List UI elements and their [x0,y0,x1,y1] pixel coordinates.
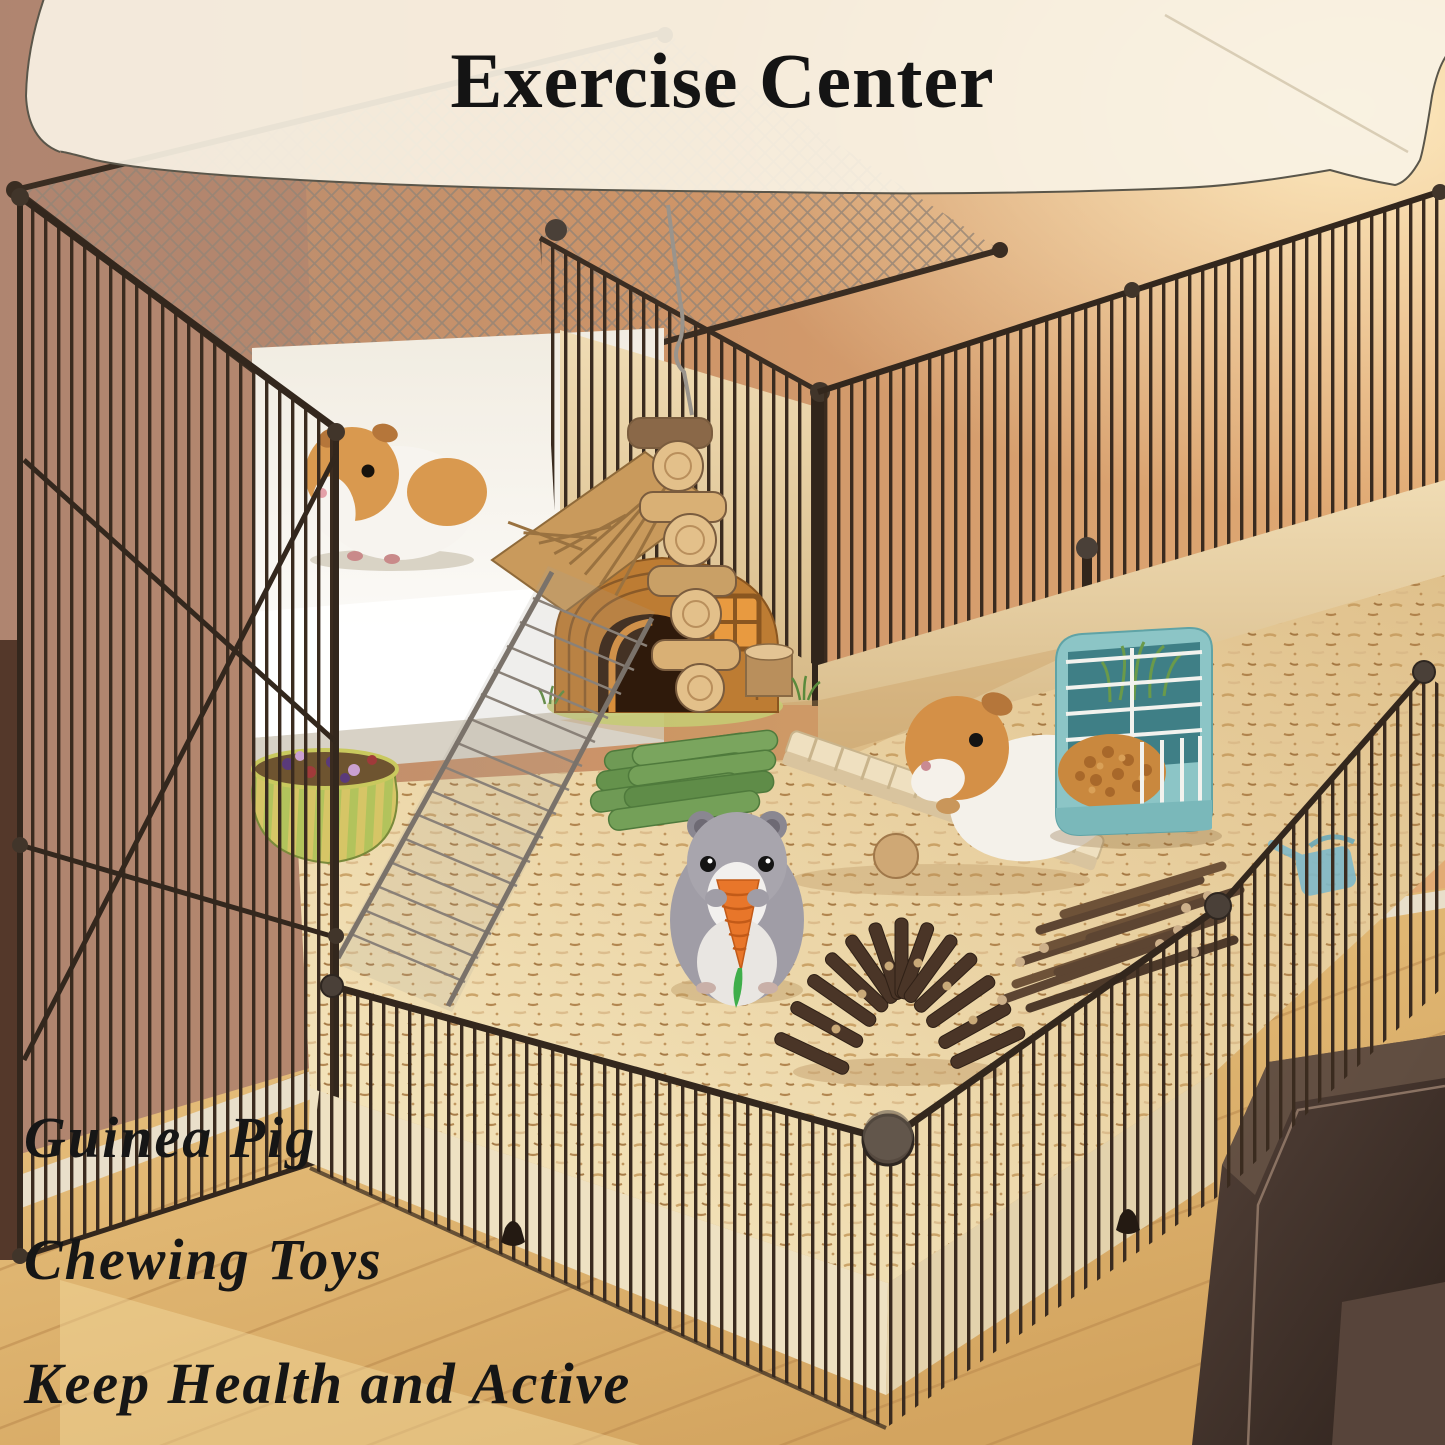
caption-chewing-toys: Chewing Toys [24,1226,383,1293]
pig-nose [921,761,931,771]
pig-eye [362,465,375,478]
seesaw-shadow [790,864,1090,896]
corner-ball-joint [545,219,567,241]
seesaw-pivot [874,834,918,878]
marketing-image: Exercise Center Guinea Pig Chewing Toys … [0,0,1445,1445]
hay-feeder [1050,628,1222,849]
banner-title: Exercise Center [450,36,994,126]
pig-eye [969,733,983,747]
caption-guinea-pig: Guinea Pig [24,1104,316,1171]
fence-cap [1076,537,1098,559]
sofa-cushion [1332,1282,1445,1445]
tree-stump [745,644,793,696]
caption-keep-health: Keep Health and Active [24,1350,631,1417]
